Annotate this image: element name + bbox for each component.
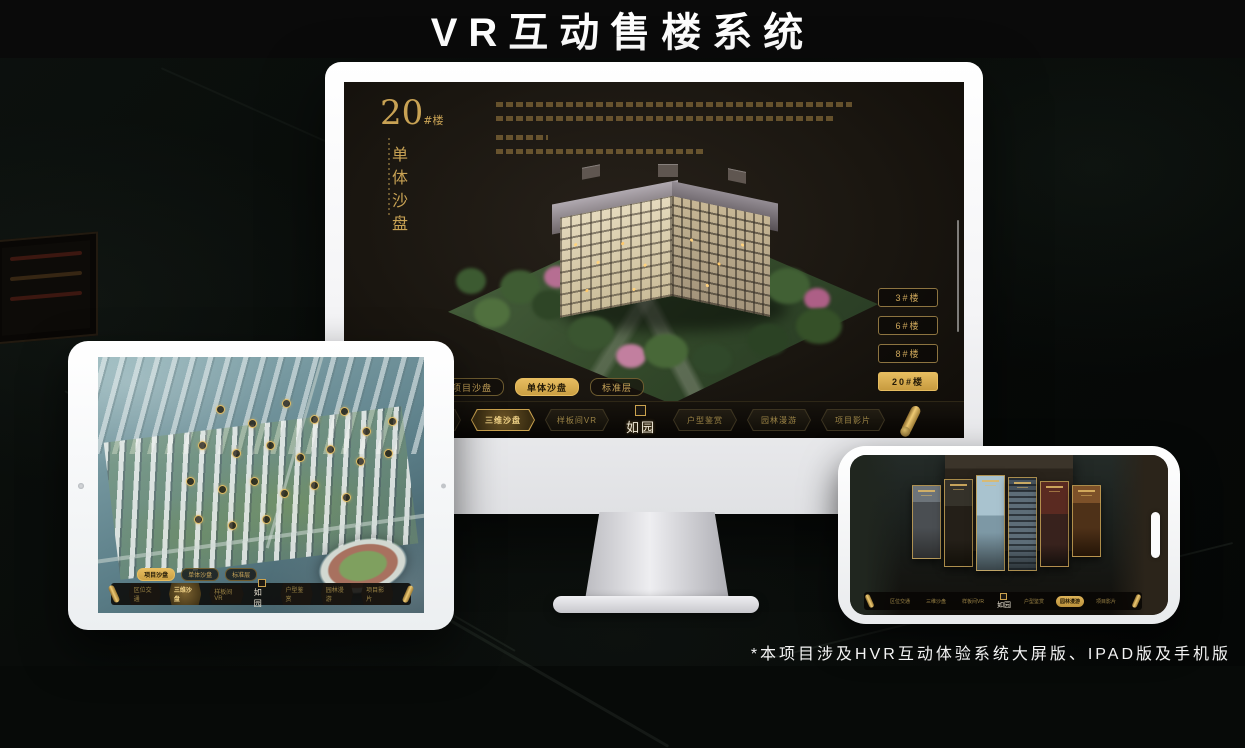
brand-logo: 如园 — [997, 593, 1011, 610]
building-badge[interactable] — [228, 521, 237, 530]
monitor-stand-base — [553, 596, 759, 613]
seal-icon — [1000, 593, 1007, 600]
tree — [796, 308, 842, 344]
scroll-menu-icon[interactable] — [900, 404, 922, 435]
tablet-device: 项目沙盘 单体沙盘 标准层 区位交通 三维沙盘 样板间VR 如园 户型鉴赏 园林… — [68, 341, 454, 630]
nav-item-garden-roam[interactable]: 园林漫游 — [321, 583, 353, 605]
building-facade-left — [560, 196, 672, 318]
seal-icon — [258, 579, 266, 587]
brand-logo: 如园 — [626, 405, 656, 436]
building-badge[interactable] — [356, 457, 365, 466]
tab-standard-floor[interactable]: 标准层 — [225, 568, 257, 581]
building-badge[interactable] — [340, 407, 349, 416]
phone-navbar: 区位交通 三维沙盘 样板间VR 如园 户型鉴赏 园林漫游 项目影片 — [864, 592, 1142, 610]
floor-button-6[interactable]: 6#楼 — [878, 316, 938, 335]
brand-logo-text: 如园 — [626, 417, 656, 436]
scene-panel[interactable] — [1008, 477, 1037, 571]
building-3d — [560, 178, 770, 310]
tablet-navbar: 区位交通 三维沙盘 样板间VR 如园 户型鉴赏 园林漫游 项目影片 — [111, 583, 411, 605]
scene-panel[interactable] — [944, 479, 973, 567]
scene-panel[interactable] — [976, 475, 1005, 571]
building-badge[interactable] — [262, 515, 271, 524]
page-title: VR互动售楼系统 — [431, 0, 815, 58]
nav-item-showroom-vr[interactable]: 样板间VR — [209, 585, 243, 604]
tab-single-sandbox[interactable]: 单体沙盘 — [515, 378, 579, 396]
background-plaque — [0, 231, 98, 344]
screen-scrollbar[interactable] — [957, 220, 959, 332]
building-badge[interactable] — [218, 485, 227, 494]
floor-button-8[interactable]: 8#楼 — [878, 344, 938, 363]
brand-logo: 如园 — [254, 579, 271, 609]
scroll-menu-icon[interactable] — [864, 594, 874, 609]
monitor-stand-neck — [585, 512, 729, 600]
building-badge[interactable] — [326, 445, 335, 454]
building-badge[interactable] — [216, 405, 225, 414]
phone-device: 区位交通 三维沙盘 样板间VR 如园 户型鉴赏 园林漫游 项目影片 — [838, 446, 1180, 624]
building-number: 20#楼 — [380, 96, 482, 138]
floor-button-20[interactable]: 20#楼 — [878, 372, 938, 391]
building-number-unit: #楼 — [423, 114, 443, 127]
nav-item-location-traffic[interactable]: 区位交通 — [129, 583, 161, 605]
building-badge[interactable] — [266, 441, 275, 450]
tree — [748, 324, 788, 356]
building-badge[interactable] — [310, 415, 319, 424]
building-badge[interactable] — [194, 515, 203, 524]
nav-item-showroom-vr[interactable]: 样板间VR — [958, 596, 988, 607]
building-facade-right — [672, 196, 770, 317]
seal-icon — [635, 405, 646, 416]
brand-logo-text: 如园 — [254, 587, 271, 609]
building-badge[interactable] — [384, 449, 393, 458]
page-header: VR互动售楼系统 — [0, 0, 1245, 58]
courtyard-wall — [850, 455, 901, 615]
nav-item-showroom-vr[interactable]: 样板间VR — [545, 409, 609, 431]
scroll-menu-icon[interactable] — [1131, 594, 1141, 609]
building-model[interactable] — [448, 148, 878, 404]
nav-item-garden-roam[interactable]: 园林漫游 — [1056, 596, 1084, 607]
phone-app-screen: 区位交通 三维沙盘 样板间VR 如园 户型鉴赏 园林漫游 项目影片 — [850, 455, 1168, 615]
nav-item-floorplan[interactable]: 户型鉴赏 — [673, 409, 737, 431]
tab-standard-floor[interactable]: 标准层 — [590, 378, 644, 396]
scene-panel[interactable] — [1072, 485, 1101, 557]
tree — [568, 316, 614, 350]
roof-dormer — [728, 168, 746, 184]
nav-item-3d-sandbox[interactable]: 三维沙盘 — [471, 409, 535, 431]
tablet-camera — [78, 483, 84, 489]
building-badge[interactable] — [198, 441, 207, 450]
building-badge[interactable] — [342, 493, 351, 502]
heading-english-deco — [388, 138, 390, 216]
floor-button-group: 3#楼 6#楼 8#楼 20#楼 — [878, 288, 938, 391]
tree — [474, 298, 510, 328]
roof-dormer — [658, 164, 678, 177]
tablet-home-button[interactable] — [441, 483, 446, 488]
tab-project-sandbox[interactable]: 项目沙盘 — [137, 568, 175, 581]
building-badge[interactable] — [310, 481, 319, 490]
tablet-sub-tabs: 项目沙盘 单体沙盘 标准层 — [137, 568, 257, 581]
flower-bush — [616, 344, 646, 368]
nav-item-floorplan[interactable]: 户型鉴赏 — [280, 583, 312, 605]
tablet-app-screen: 项目沙盘 单体沙盘 标准层 区位交通 三维沙盘 样板间VR 如园 户型鉴赏 园林… — [98, 357, 424, 613]
tab-single-sandbox[interactable]: 单体沙盘 — [181, 568, 219, 581]
building-badge[interactable] — [280, 489, 289, 498]
sandbox-sub-tabs: 项目沙盘 单体沙盘 标准层 — [440, 378, 644, 396]
nav-item-garden-roam[interactable]: 园林漫游 — [747, 409, 811, 431]
phone-notch-speaker — [1151, 512, 1160, 558]
nav-item-project-film[interactable]: 项目影片 — [821, 409, 885, 431]
building-badge[interactable] — [362, 427, 371, 436]
scene-panel[interactable] — [912, 485, 941, 559]
building-badge[interactable] — [282, 399, 291, 408]
building-badge[interactable] — [296, 453, 305, 462]
nav-item-location-traffic[interactable]: 区位交通 — [886, 596, 914, 607]
building-badge[interactable] — [186, 477, 195, 486]
nav-item-floorplan[interactable]: 户型鉴赏 — [1020, 596, 1048, 607]
flower-bush — [804, 288, 830, 310]
tree — [644, 334, 688, 368]
scene-panel[interactable] — [1040, 481, 1069, 567]
footnote-text: *本项目涉及HVR互动体验系统大屏版、IPAD版及手机版 — [751, 640, 1231, 664]
tree — [692, 344, 732, 374]
nav-item-project-film[interactable]: 项目影片 — [1092, 596, 1120, 607]
floor-button-3[interactable]: 3#楼 — [878, 288, 938, 307]
nav-item-3d-sandbox[interactable]: 三维沙盘 — [922, 596, 950, 607]
roof-dormer — [582, 164, 600, 179]
tree — [456, 268, 486, 294]
building-badge[interactable] — [388, 417, 397, 426]
building-badge[interactable] — [248, 419, 257, 428]
brand-logo-text: 如园 — [997, 600, 1011, 610]
nav-item-3d-sandbox[interactable]: 三维沙盘 — [169, 583, 201, 605]
building-badge[interactable] — [232, 449, 241, 458]
building-badge[interactable] — [250, 477, 259, 486]
nav-item-project-film[interactable]: 项目影片 — [361, 583, 393, 605]
